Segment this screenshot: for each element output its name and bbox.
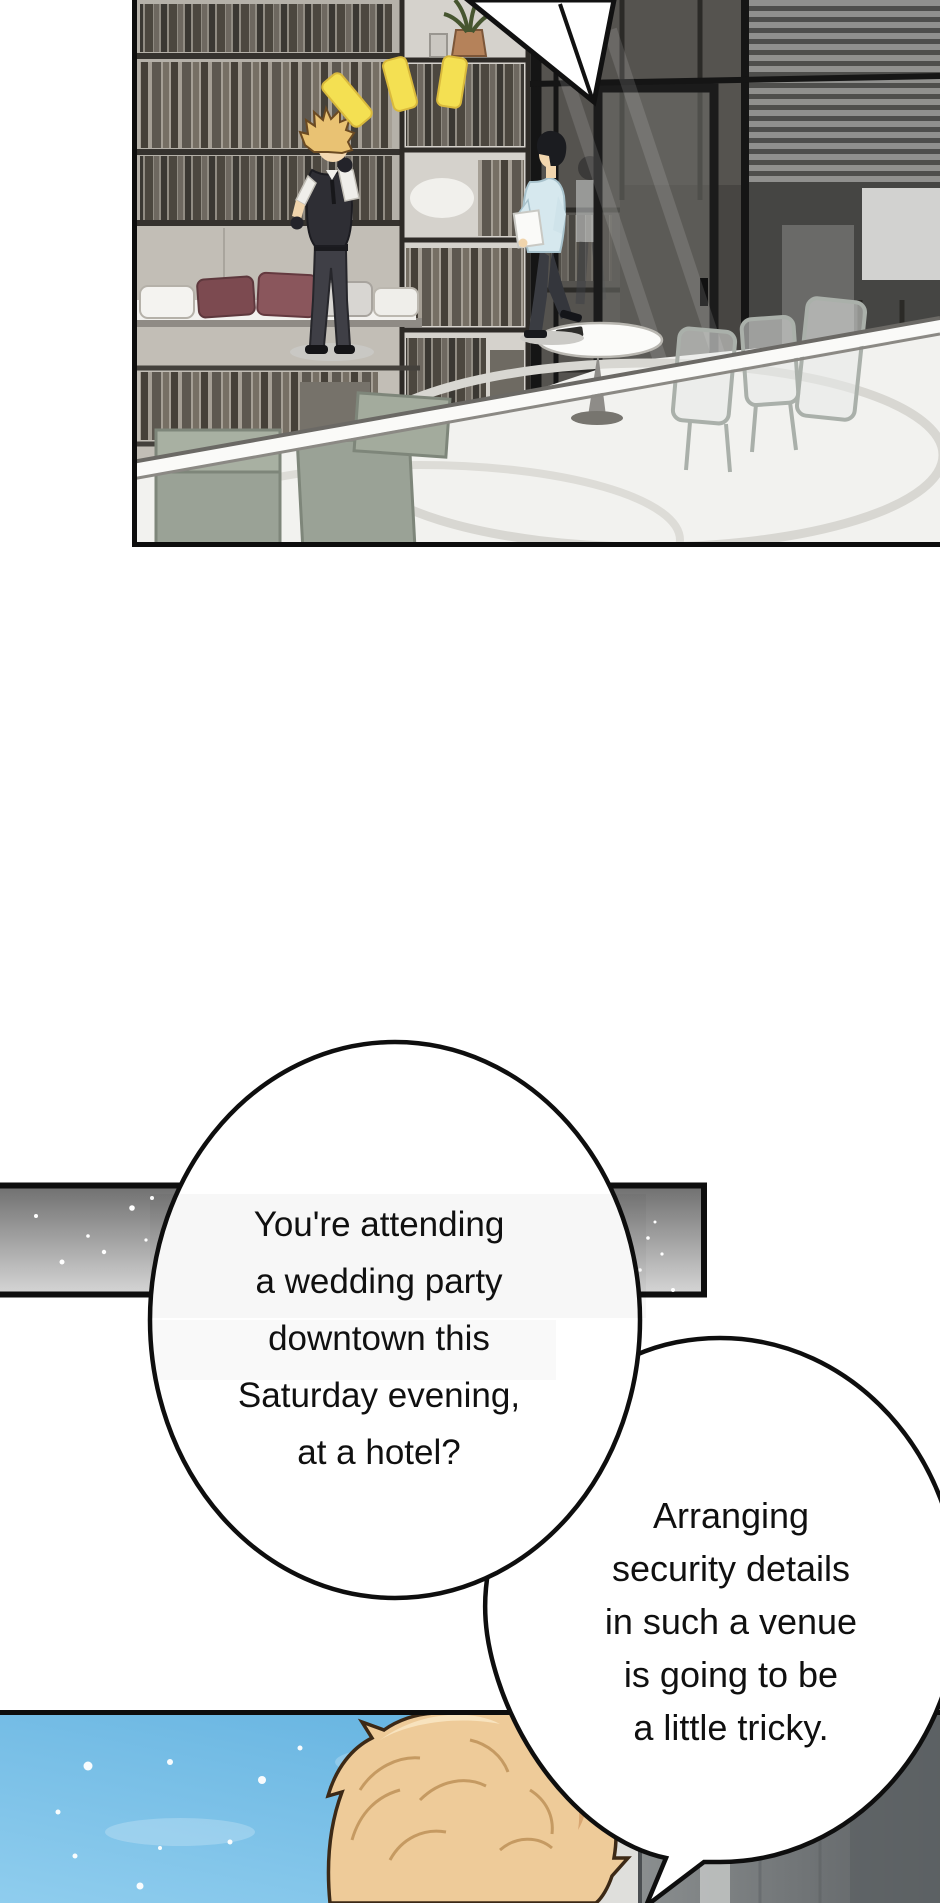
window-blinds — [745, 0, 940, 182]
bubble1-line: at a hotel? — [163, 1424, 595, 1481]
bubble1-line: a wedding party — [163, 1253, 595, 1310]
panel-border-left — [132, 0, 137, 547]
panel-border-bottom — [132, 542, 940, 547]
bubble2-line: security details — [511, 1542, 940, 1595]
bubble1-line: You're attending — [163, 1196, 595, 1253]
papers — [514, 210, 543, 247]
speech-bubble-1-text: You're attending a wedding party downtow… — [163, 1196, 595, 1481]
panel-office-scene — [132, 0, 940, 615]
bubble1-line: downtown this — [163, 1310, 595, 1367]
bubble1-line: Saturday evening, — [163, 1367, 595, 1424]
comic-page: You're attending a wedding party downtow… — [0, 0, 940, 1903]
bubble2-line: in such a venue — [511, 1595, 940, 1648]
speech-bubble-2-text: Arranging security details in such a ven… — [511, 1489, 940, 1754]
bubble2-line: is going to be — [511, 1648, 940, 1701]
bubble2-line: Arranging — [511, 1489, 940, 1542]
bubble2-line: a little tricky. — [511, 1701, 940, 1754]
